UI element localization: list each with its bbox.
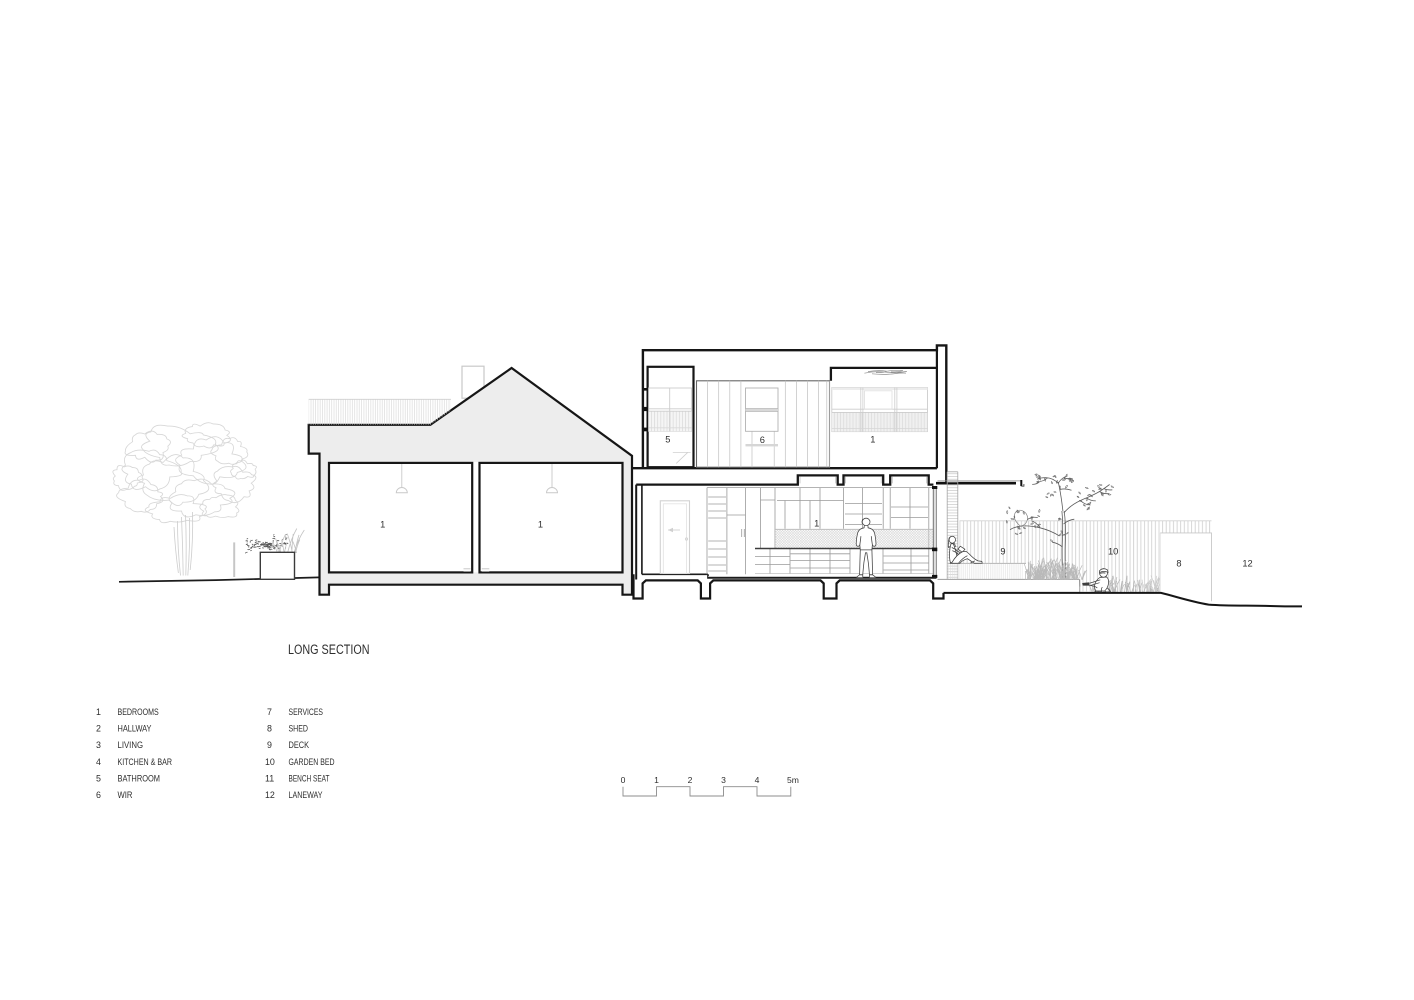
svg-text:BENCH SEAT: BENCH SEAT (289, 773, 330, 783)
svg-text:4: 4 (96, 757, 101, 767)
svg-text:GARDEN BED: GARDEN BED (289, 757, 335, 767)
svg-text:7: 7 (267, 707, 272, 717)
svg-text:6: 6 (96, 790, 101, 800)
svg-text:0: 0 (621, 775, 626, 785)
svg-text:HALLWAY: HALLWAY (118, 724, 152, 734)
svg-text:6: 6 (760, 435, 765, 445)
svg-text:9: 9 (267, 740, 272, 750)
svg-text:1: 1 (814, 519, 819, 529)
svg-text:12: 12 (1242, 558, 1252, 568)
svg-text:3: 3 (96, 740, 101, 750)
svg-text:1: 1 (870, 435, 875, 445)
svg-text:10: 10 (265, 757, 275, 767)
svg-text:SHED: SHED (289, 724, 309, 734)
svg-text:BATHROOM: BATHROOM (118, 773, 161, 783)
svg-text:5: 5 (665, 435, 670, 445)
svg-text:5: 5 (96, 773, 101, 783)
svg-text:8: 8 (1176, 558, 1181, 568)
svg-text:5m: 5m (787, 775, 799, 785)
svg-text:2: 2 (96, 724, 101, 734)
svg-text:BEDROOMS: BEDROOMS (118, 707, 159, 717)
svg-text:9: 9 (1000, 546, 1005, 556)
svg-text:LANEWAY: LANEWAY (289, 790, 323, 800)
svg-text:11: 11 (265, 773, 274, 783)
svg-text:12: 12 (265, 790, 275, 800)
svg-text:SERVICES: SERVICES (289, 707, 324, 717)
svg-text:1: 1 (538, 520, 543, 530)
svg-text:1: 1 (380, 520, 385, 530)
svg-text:KITCHEN & BAR: KITCHEN & BAR (118, 757, 173, 767)
svg-text:1: 1 (654, 775, 659, 785)
svg-text:1: 1 (96, 707, 101, 717)
svg-text:4: 4 (755, 775, 760, 785)
svg-text:LONG SECTION: LONG SECTION (288, 642, 370, 658)
svg-text:8: 8 (267, 724, 272, 734)
svg-text:WIR: WIR (118, 790, 133, 800)
svg-text:3: 3 (721, 775, 726, 785)
svg-text:DECK: DECK (289, 740, 310, 750)
svg-text:LIVING: LIVING (118, 740, 144, 750)
svg-text:2: 2 (688, 775, 693, 785)
svg-text:10: 10 (1108, 546, 1118, 556)
